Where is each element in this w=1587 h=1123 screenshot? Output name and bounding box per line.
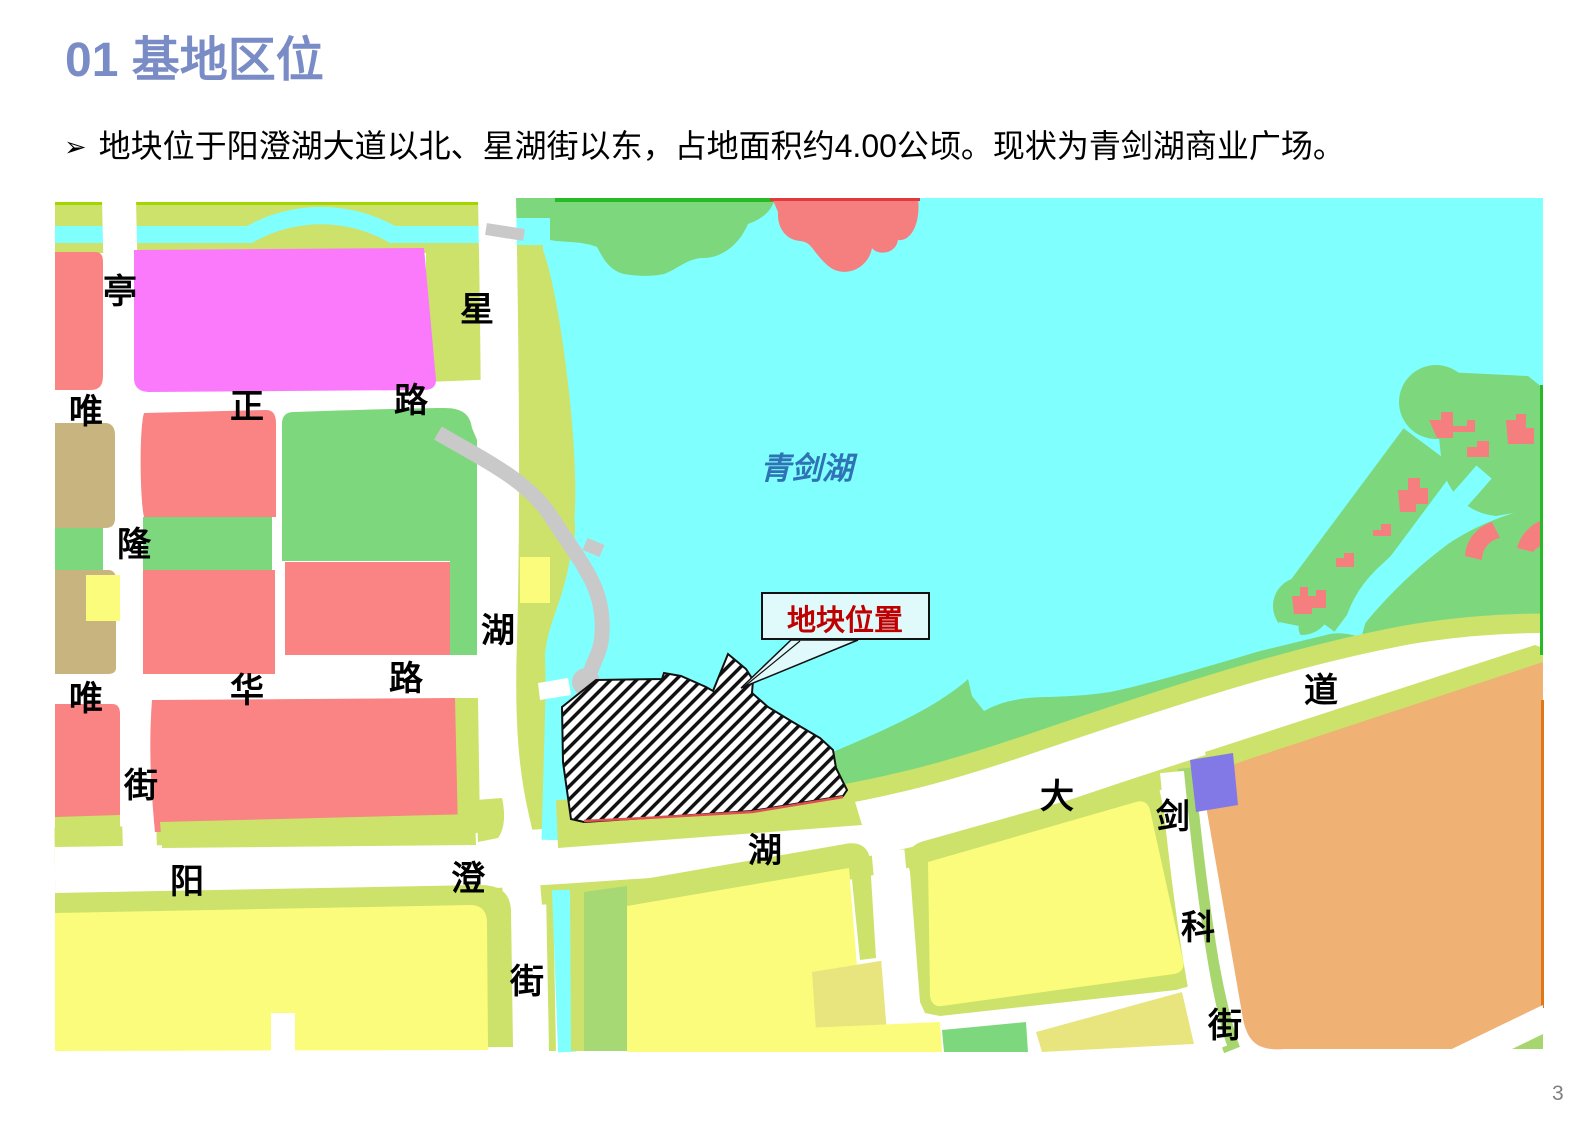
svg-text:大: 大: [1040, 778, 1074, 816]
svg-text:路: 路: [394, 382, 429, 420]
svg-text:科: 科: [1181, 909, 1215, 947]
svg-text:剑: 剑: [1156, 797, 1190, 836]
svg-text:正: 正: [230, 388, 264, 426]
svg-text:湖: 湖: [481, 612, 515, 650]
svg-text:星: 星: [460, 291, 494, 329]
svg-text:街: 街: [1207, 1007, 1242, 1045]
svg-text:地块位置: 地块位置: [787, 603, 903, 637]
svg-text:街: 街: [123, 767, 158, 805]
svg-text:阳: 阳: [170, 863, 204, 901]
svg-text:华: 华: [230, 672, 264, 710]
svg-text:湖: 湖: [748, 832, 782, 870]
svg-text:唯: 唯: [69, 393, 103, 431]
svg-text:唯: 唯: [69, 680, 103, 718]
svg-text:路: 路: [389, 660, 424, 698]
svg-text:澄: 澄: [451, 860, 486, 898]
svg-text:隆: 隆: [117, 526, 152, 564]
svg-text:道: 道: [1304, 672, 1338, 710]
svg-text:青剑湖: 青剑湖: [760, 451, 858, 486]
svg-text:街: 街: [509, 963, 544, 1001]
svg-text:亭: 亭: [103, 273, 137, 311]
